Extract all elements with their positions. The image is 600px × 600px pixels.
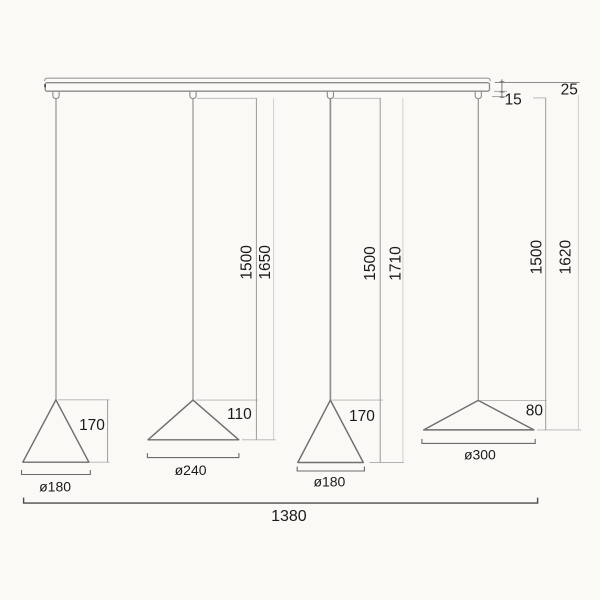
svg-text:170: 170 [349,408,375,425]
svg-text:ø240: ø240 [175,462,207,478]
svg-text:15: 15 [505,92,522,109]
svg-text:1500: 1500 [529,239,546,274]
svg-text:110: 110 [227,406,252,423]
svg-text:1500: 1500 [239,245,256,280]
svg-text:1500: 1500 [362,246,379,281]
svg-text:1650: 1650 [257,245,274,280]
svg-text:1710: 1710 [387,246,404,281]
svg-text:80: 80 [526,402,544,419]
svg-text:1380: 1380 [271,508,307,525]
svg-text:1620: 1620 [558,239,575,274]
svg-text:25: 25 [561,81,578,98]
svg-text:ø180: ø180 [313,474,345,490]
svg-text:ø180: ø180 [39,478,71,494]
svg-text:ø300: ø300 [464,447,496,463]
svg-text:170: 170 [79,417,105,434]
